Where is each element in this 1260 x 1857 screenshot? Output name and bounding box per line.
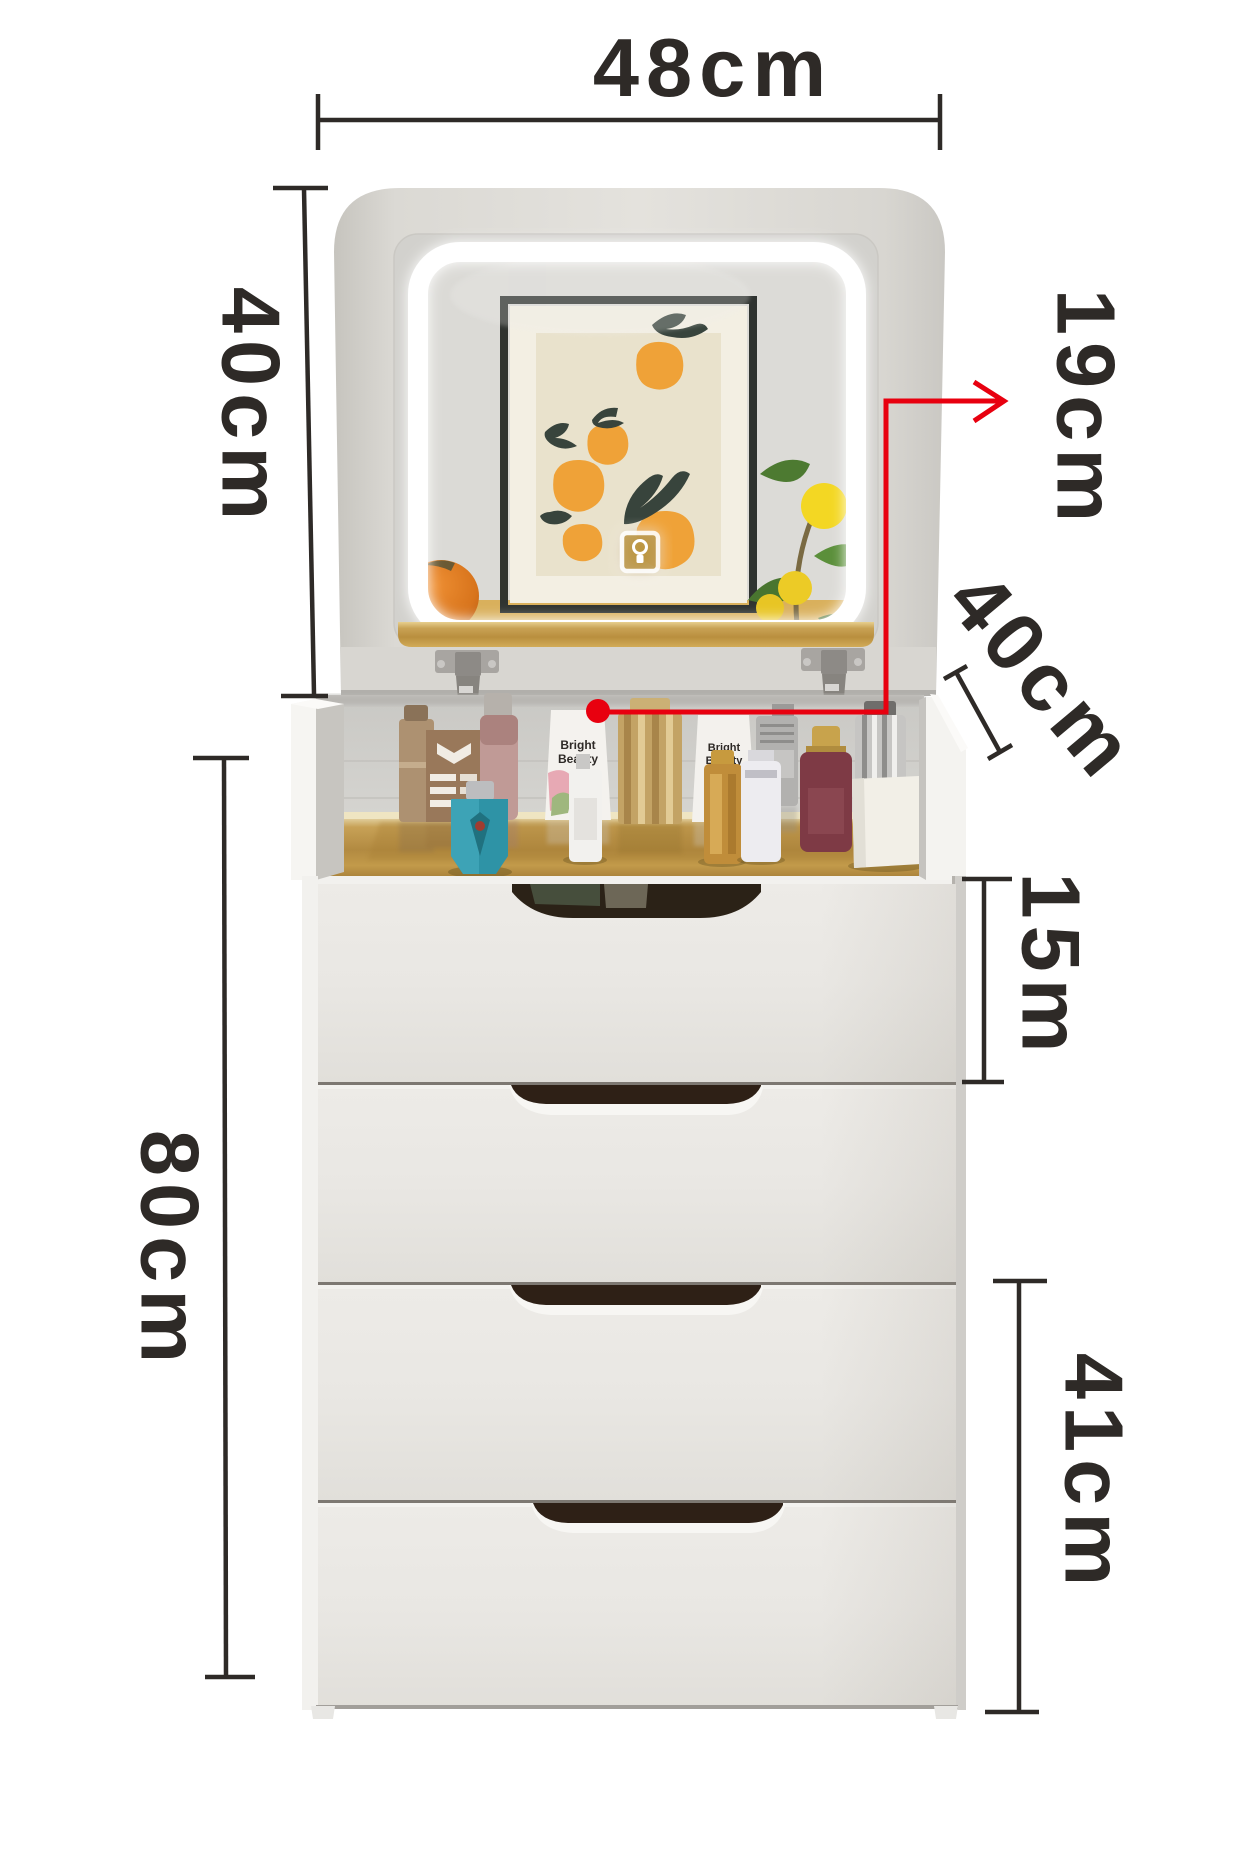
svg-text:40cm: 40cm [205,287,298,527]
svg-text:19cm: 19cm [1040,289,1133,529]
svg-text:80cm: 80cm [124,1130,217,1370]
svg-text:15m: 15m [1005,872,1098,1059]
svg-text:41cm: 41cm [1048,1353,1141,1593]
svg-text:Bright: Bright [560,738,595,752]
svg-text:48cm: 48cm [593,21,833,114]
